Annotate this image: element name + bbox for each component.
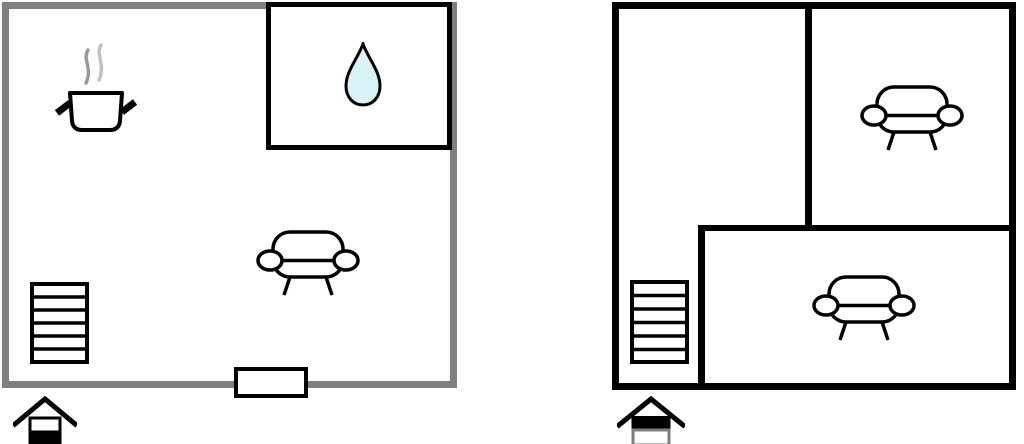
sofa-body [877, 87, 947, 132]
stairs-icon [630, 280, 689, 364]
water-drop-shape [346, 44, 380, 105]
sofa-icon [812, 272, 916, 344]
interior-wall [805, 9, 812, 226]
sofa-leg [840, 322, 846, 340]
cooking-pot-icon [52, 38, 137, 133]
sofa-leg [326, 277, 332, 295]
entrance-door [234, 367, 308, 398]
steam-line-icon [86, 50, 88, 83]
house-upper-level-active [632, 416, 671, 430]
floor-level-lower-icon [13, 396, 77, 444]
sofa-armrest [890, 296, 914, 315]
floor-level-upper-icon [617, 396, 685, 444]
floor-plan-canvas [0, 0, 1024, 444]
water-drop-icon [343, 42, 383, 108]
house-lower-level-active [29, 432, 62, 444]
sofa-armrest [938, 106, 962, 125]
house-lower-level [633, 430, 669, 444]
sofa-armrest [814, 296, 838, 315]
sofa-icon [860, 82, 964, 154]
pot-body [70, 93, 122, 130]
sofa-armrest [862, 106, 886, 125]
sofa-icon [256, 227, 360, 299]
pot-handle-left [57, 103, 70, 113]
pot-handle-right [122, 102, 135, 112]
sofa-leg [882, 322, 888, 340]
sofa-body [273, 232, 343, 277]
steam-line-icon [99, 45, 101, 80]
sofa-armrest [258, 251, 282, 270]
sofa-leg [930, 132, 936, 150]
house-upper-level [30, 418, 60, 432]
sofa-leg [888, 132, 894, 150]
stairs-icon [30, 282, 89, 364]
sofa-body [829, 277, 899, 322]
sofa-leg [284, 277, 290, 295]
sofa-armrest [334, 251, 358, 270]
